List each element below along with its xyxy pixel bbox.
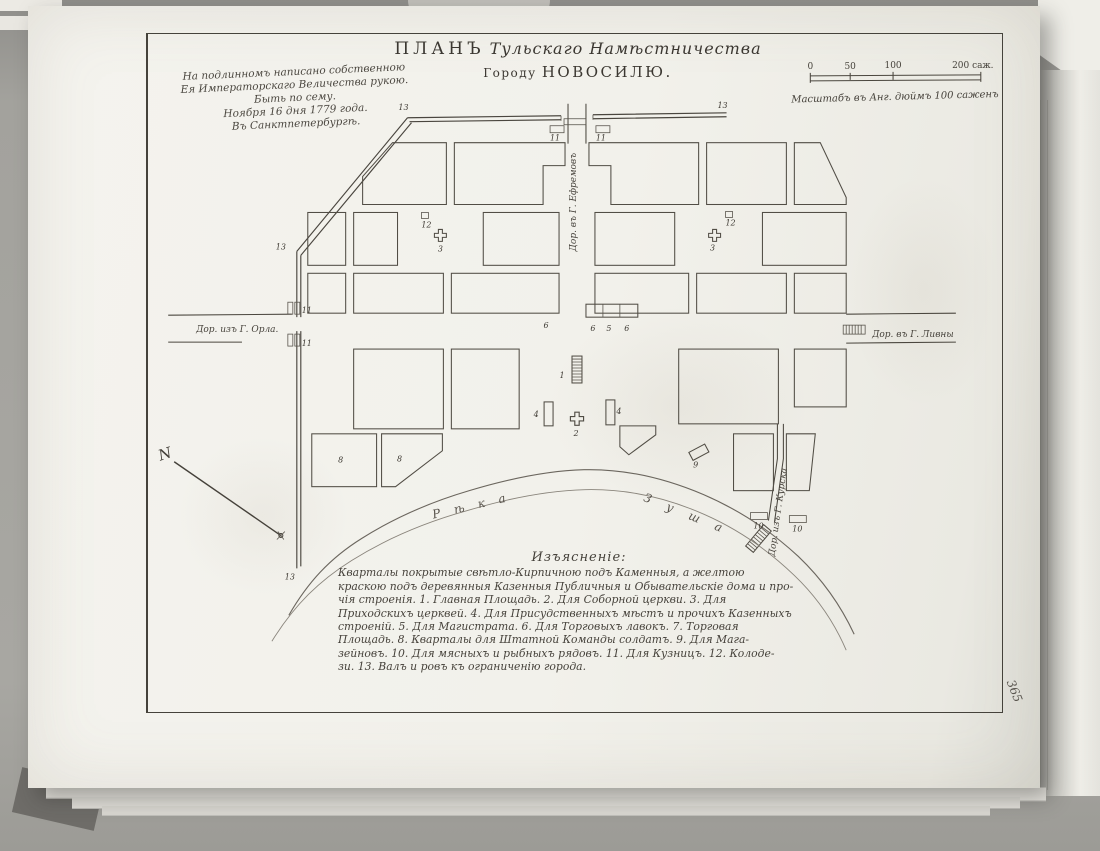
trade-shops [586, 304, 638, 317]
government-building [606, 400, 615, 425]
map-marker-2: 2 [572, 429, 578, 438]
map-marker-3: 3 [710, 243, 715, 252]
legend-line: зи. 13. Валъ и ровъ къ ограниченію город… [338, 660, 820, 673]
legend-line: зейновъ. 10. Для мясныхъ и рыбныхъ рядов… [338, 647, 820, 660]
main-square-monument [572, 356, 582, 383]
fore-edge-line [1040, 100, 1041, 790]
legend-line: Площадь. 8. Кварталы для Штатной Команды… [338, 633, 820, 646]
title-plan-word: ПЛАНЪ [394, 39, 484, 59]
map-marker-1: 1 [559, 371, 564, 380]
cathedral-square [544, 356, 615, 426]
page-stack-edge [102, 806, 990, 816]
map-marker-6: 6 [544, 321, 549, 330]
north-gate [564, 119, 586, 125]
title-city-prefix: Городу [483, 66, 537, 80]
map-marker-11: 11 [550, 134, 560, 143]
map-marker-11: 11 [302, 339, 312, 348]
road-label-west: Дор. изъ Г. Орла. [195, 325, 278, 335]
cathedral [570, 412, 583, 425]
map-marker-13: 13 [285, 572, 295, 581]
river-name-second: Зуша [642, 490, 741, 541]
well-left [421, 212, 428, 218]
map-marker-3: 3 [438, 244, 443, 253]
compass-needle: N [155, 443, 285, 539]
scanned-map-page: { "document": { "title_plan": "ПЛАНЪ", "… [0, 0, 1100, 851]
road-label-south: Дор. изъ Г. Курска [767, 467, 789, 557]
compass-north-letter: N [155, 443, 175, 465]
map-marker-8: 8 [397, 455, 402, 464]
legend-line: краскою подъ деревянныя Казенныя Публичн… [338, 580, 820, 593]
map-marker-9: 9 [693, 461, 698, 470]
scale-tick-200: 200 саж. [952, 61, 994, 71]
map-marker-11: 11 [302, 306, 312, 315]
map-marker-12: 12 [725, 218, 735, 227]
scale-tick-50: 50 [844, 62, 856, 72]
map-marker-11: 11 [596, 134, 606, 143]
legend-block: Изъясненіе: Кварталы покрытые свѣтло-Кир… [338, 551, 820, 674]
warehouse [689, 444, 709, 460]
page-number: 365 [1004, 678, 1026, 704]
map-marker-4: 4 [615, 407, 621, 416]
fore-edge-line [1047, 100, 1048, 790]
map-marker-13: 13 [276, 242, 286, 251]
legend-line: Кварталы покрытые свѣтло-Кирпичною подъ … [338, 566, 820, 579]
map-number-markers: 1313131311111111121233124456668891010 [276, 101, 803, 582]
title-script-part: Тульскаго Намѣстничества [490, 39, 762, 58]
legend-title: Изъясненіе: [338, 551, 820, 564]
legend-line: Приходскихъ церквей. 4. Для Присудственн… [338, 607, 820, 620]
map-marker-6: 6 [590, 324, 595, 333]
map-sheet: Рѣка Зуша Дор. изъ Г. Орла. Дор. въ Г. Л… [28, 6, 1040, 788]
scale-tick-100: 100 [885, 61, 902, 71]
map-marker-12: 12 [421, 220, 431, 229]
map-marker-6: 6 [624, 324, 629, 333]
river-name-first: Рѣка [430, 488, 521, 522]
imperial-confirmation-note: На подлинномъ написано собственною Ея Им… [139, 59, 452, 137]
title-city-name: НОВОСИЛЮ. [542, 63, 673, 81]
road-label-east: Дор. въ Г. Ливны [871, 330, 954, 340]
scale-caption: Масштабъ въ Анг. дюймъ 100 саженъ [790, 89, 999, 105]
road-label-north: Дор. въ Г. Ефремовъ [569, 153, 579, 252]
map-marker-4: 4 [533, 410, 539, 419]
map-marker-10: 10 [792, 525, 802, 534]
book-fore-edge [1034, 70, 1100, 796]
legend-line: чія строенія. 1. Главная Площадь. 2. Для… [338, 593, 820, 606]
map-marker-5: 5 [606, 324, 611, 333]
legend-line: строеній. 5. Для Магистрата. 6. Для Торг… [338, 620, 820, 633]
east-gate-hatched [843, 325, 865, 334]
map-marker-10: 10 [753, 522, 763, 531]
map-marker-13: 13 [717, 101, 727, 110]
government-building [544, 402, 553, 426]
well-right [726, 211, 733, 217]
map-marker-8: 8 [338, 456, 343, 465]
